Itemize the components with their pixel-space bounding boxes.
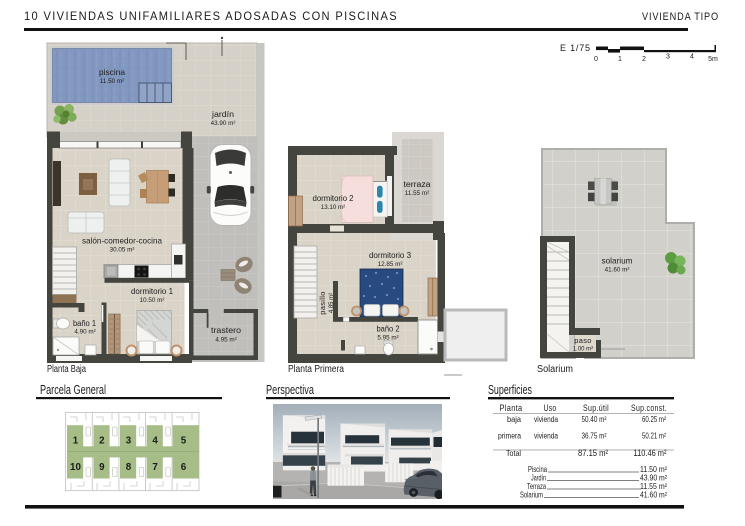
svg-text:Solarium: Solarium bbox=[520, 491, 543, 500]
svg-text:Total: Total bbox=[506, 448, 521, 458]
svg-text:VIVIENDA TIPO: VIVIENDA TIPO bbox=[642, 11, 719, 23]
svg-text:jardín: jardín bbox=[211, 109, 234, 119]
svg-text:baja: baja bbox=[507, 415, 522, 424]
svg-text:87.15 m²: 87.15 m² bbox=[578, 448, 608, 458]
svg-text:4: 4 bbox=[152, 436, 158, 447]
svg-text:3: 3 bbox=[126, 436, 132, 447]
svg-text:baño 1: baño 1 bbox=[73, 319, 97, 328]
svg-text:baño 2: baño 2 bbox=[377, 325, 401, 334]
svg-text:Parcela General: Parcela General bbox=[40, 383, 106, 397]
svg-text:Superficies: Superficies bbox=[488, 383, 532, 397]
svg-text:12.85 m²: 12.85 m² bbox=[378, 261, 403, 268]
svg-text:dormitorio 1: dormitorio 1 bbox=[131, 286, 173, 296]
svg-text:13.10 m²: 13.10 m² bbox=[321, 204, 345, 211]
svg-text:trastero: trastero bbox=[211, 325, 241, 335]
svg-text:2: 2 bbox=[99, 436, 105, 447]
svg-text:1: 1 bbox=[73, 436, 79, 447]
svg-text:Sup.const.: Sup.const. bbox=[631, 403, 667, 413]
svg-text:7: 7 bbox=[152, 462, 158, 473]
svg-text:4.95 m²: 4.95 m² bbox=[215, 337, 236, 344]
svg-text:11.50 m²: 11.50 m² bbox=[100, 78, 124, 85]
svg-text:10 VIVIENDAS UNIFAMILIARES ADO: 10 VIVIENDAS UNIFAMILIARES ADOSADAS CON … bbox=[24, 11, 398, 23]
svg-text:30.05 m²: 30.05 m² bbox=[110, 247, 135, 254]
svg-text:43.90 m²: 43.90 m² bbox=[211, 120, 236, 127]
svg-text:9: 9 bbox=[99, 462, 105, 473]
svg-text:5: 5 bbox=[181, 436, 187, 447]
svg-text:E 1/75: E 1/75 bbox=[560, 43, 591, 53]
svg-text:pasillo: pasillo bbox=[318, 291, 327, 314]
svg-text:Planta: Planta bbox=[500, 403, 523, 413]
svg-text:1.00 m²: 1.00 m² bbox=[573, 347, 593, 353]
svg-text:11.55 m²: 11.55 m² bbox=[405, 190, 429, 197]
svg-text:36.75 m²: 36.75 m² bbox=[582, 432, 607, 441]
svg-text:60.25 m²: 60.25 m² bbox=[642, 415, 666, 424]
svg-text:dormitorio 2: dormitorio 2 bbox=[313, 194, 354, 203]
svg-text:10: 10 bbox=[70, 462, 81, 473]
svg-text:110.46 m²: 110.46 m² bbox=[634, 448, 667, 458]
svg-text:6: 6 bbox=[181, 462, 187, 473]
svg-text:41.60 m²: 41.60 m² bbox=[605, 267, 630, 274]
svg-text:50.40 m²: 50.40 m² bbox=[582, 415, 607, 424]
svg-text:Planta Primera: Planta Primera bbox=[288, 364, 344, 375]
svg-text:5m: 5m bbox=[708, 56, 718, 63]
svg-text:terraza: terraza bbox=[404, 180, 432, 189]
svg-text:Planta Baja: Planta Baja bbox=[47, 364, 86, 375]
svg-text:0: 0 bbox=[594, 56, 598, 63]
svg-text:paso: paso bbox=[574, 336, 591, 345]
svg-text:50.21 m²: 50.21 m² bbox=[642, 432, 666, 441]
svg-text:4.90 m²: 4.90 m² bbox=[74, 329, 95, 336]
svg-text:Solarium: Solarium bbox=[537, 364, 573, 375]
svg-text:piscina: piscina bbox=[99, 67, 125, 77]
svg-text:41.60 m²: 41.60 m² bbox=[640, 491, 667, 500]
svg-text:10.50 m²: 10.50 m² bbox=[140, 297, 165, 304]
svg-text:dormitorio 3: dormitorio 3 bbox=[369, 251, 412, 260]
svg-text:2: 2 bbox=[642, 56, 646, 63]
svg-text:Uso: Uso bbox=[544, 403, 557, 413]
svg-text:solarium: solarium bbox=[602, 256, 633, 266]
svg-text:primera: primera bbox=[498, 432, 521, 441]
svg-text:salón-comedor-cocina: salón-comedor-cocina bbox=[82, 236, 162, 246]
svg-text:1: 1 bbox=[618, 56, 622, 63]
svg-text:8: 8 bbox=[126, 462, 132, 473]
svg-text:Perspectiva: Perspectiva bbox=[266, 383, 314, 397]
svg-text:vivienda: vivienda bbox=[534, 415, 558, 424]
svg-text:Sup.útil: Sup.útil bbox=[583, 403, 609, 413]
svg-text:vivienda: vivienda bbox=[534, 432, 558, 441]
svg-text:5.95 m²: 5.95 m² bbox=[377, 335, 398, 342]
svg-text:4: 4 bbox=[690, 54, 694, 61]
svg-text:3: 3 bbox=[666, 54, 670, 61]
